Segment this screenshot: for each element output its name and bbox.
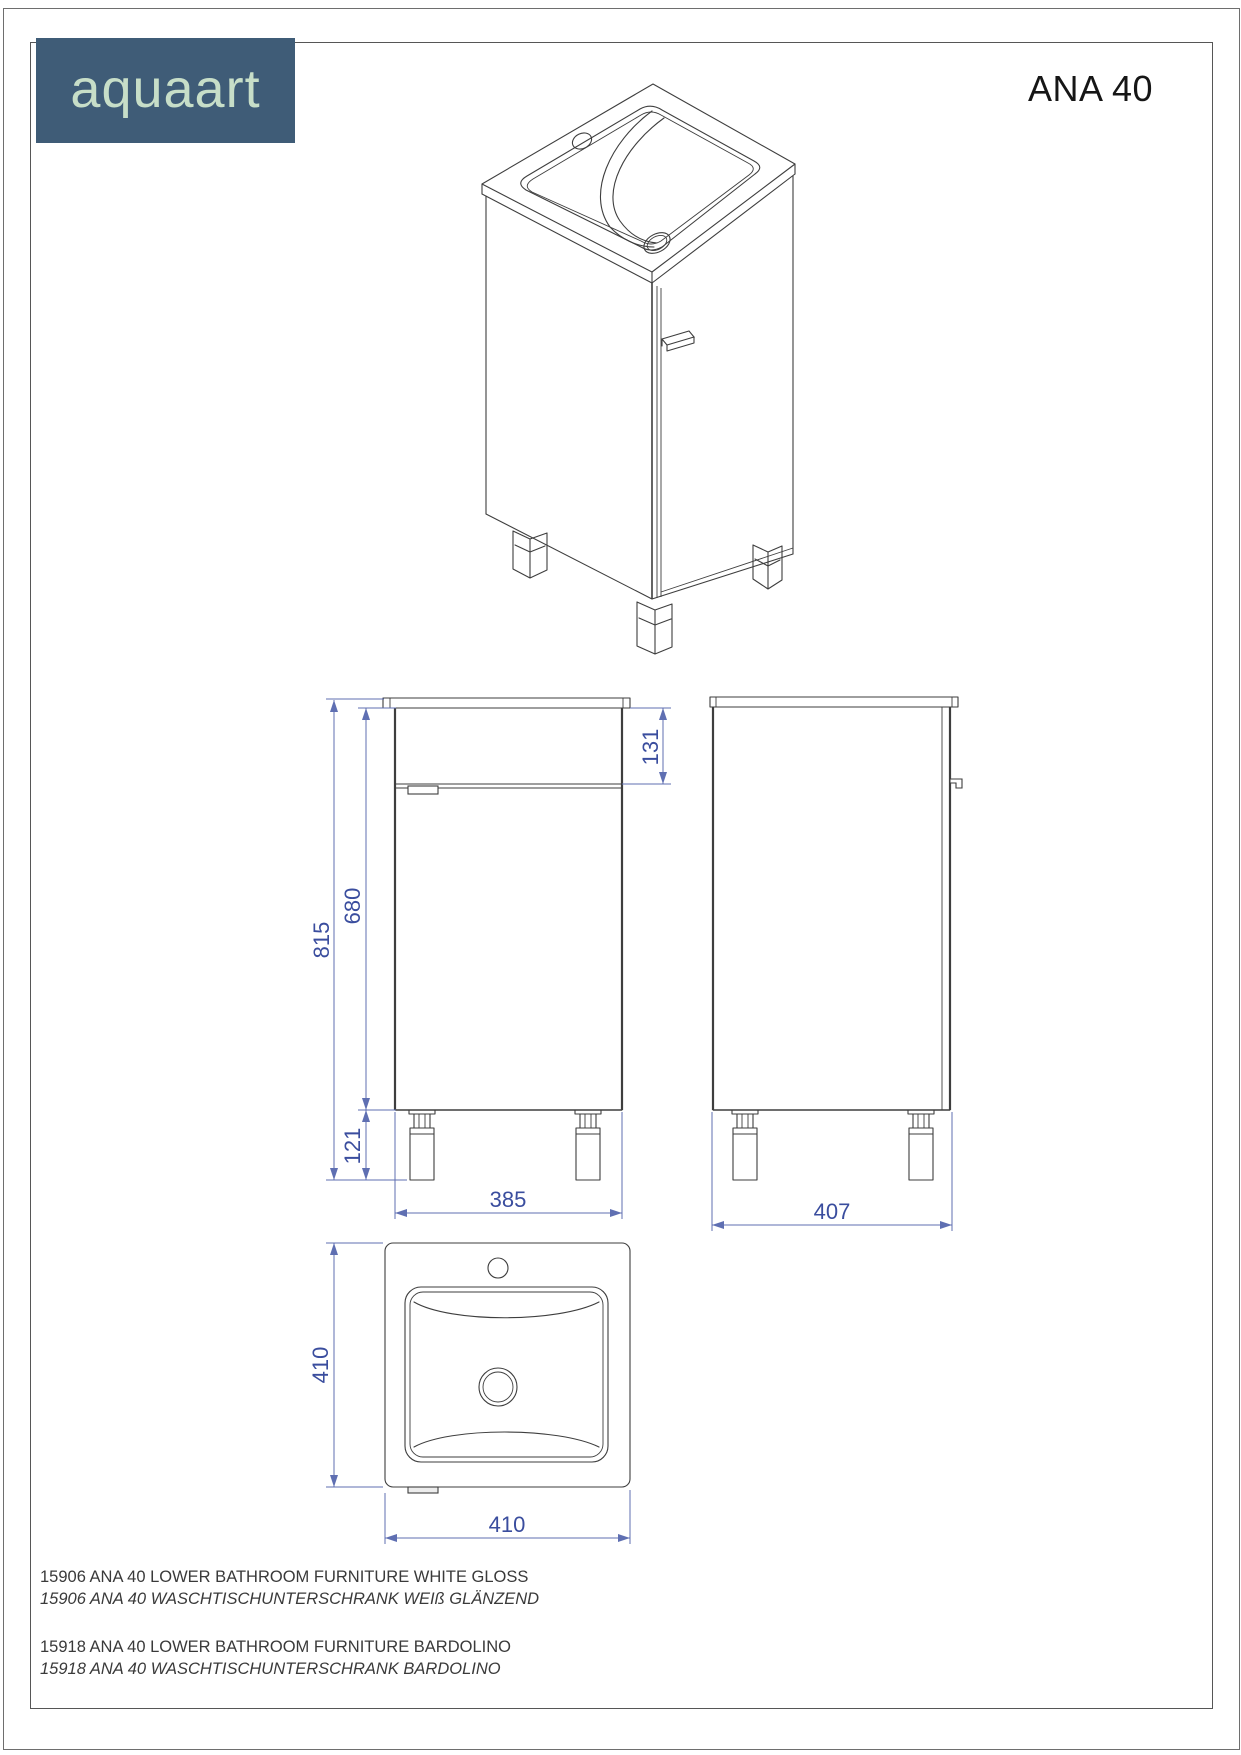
dimension-body-height: 680: [340, 888, 365, 925]
dimension-basin-width: 410: [489, 1512, 526, 1537]
isometric-view: [482, 84, 795, 654]
dimension-cabinet-width: 385: [490, 1187, 527, 1212]
dimension-side-depth: 407: [814, 1199, 851, 1224]
product-2-name-en: 15918 ANA 40 LOWER BATHROOM FURNITURE BA…: [40, 1638, 511, 1657]
product-1-name-de: 15906 ANA 40 WASCHTISCHUNTERSCHRANK WEIß…: [40, 1590, 539, 1609]
product-2-name-de: 15918 ANA 40 WASCHTISCHUNTERSCHRANK BARD…: [40, 1660, 501, 1679]
dimension-top-panel-height: 131: [638, 729, 663, 766]
dimension-total-height: 815: [309, 922, 334, 959]
technical-drawing: 815 680 121 131 385 407 410 410: [0, 0, 1241, 1755]
front-view: [383, 698, 630, 1180]
datasheet-page: aquaart ANA 40: [0, 0, 1241, 1755]
plan-view: [385, 1243, 630, 1493]
product-1-name-en: 15906 ANA 40 LOWER BATHROOM FURNITURE WH…: [40, 1568, 528, 1587]
dimension-leg-height: 121: [340, 1128, 365, 1165]
dimension-basin-depth: 410: [308, 1347, 333, 1384]
side-view: [710, 697, 962, 1180]
